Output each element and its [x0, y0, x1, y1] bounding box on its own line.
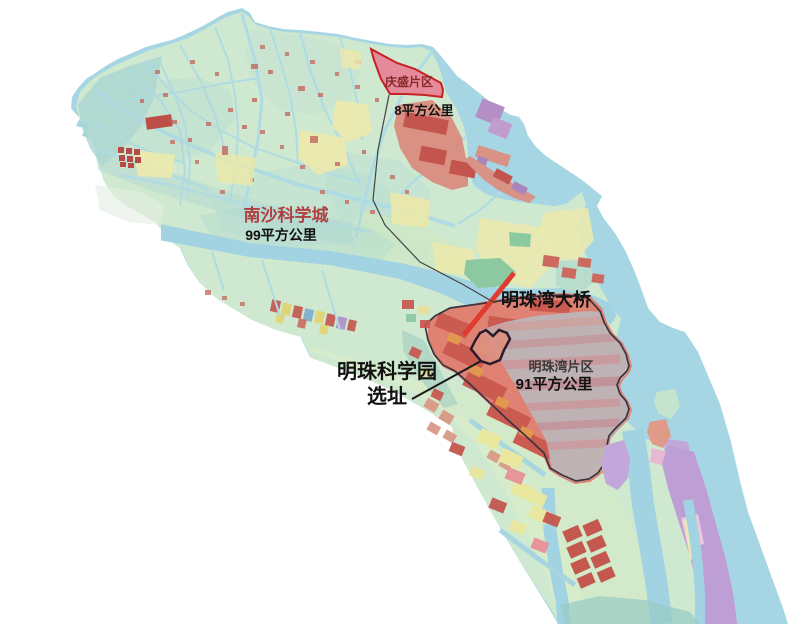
svg-text:明珠湾大桥: 明珠湾大桥: [501, 289, 592, 310]
svg-text:庆盛片区: 庆盛片区: [384, 74, 433, 89]
svg-text:明珠科学园: 明珠科学园: [337, 359, 437, 383]
svg-text:91平方公里: 91平方公里: [516, 375, 593, 393]
svg-text:南沙科学城: 南沙科学城: [244, 205, 329, 225]
svg-text:8平方公里: 8平方公里: [394, 103, 453, 118]
svg-text:选址: 选址: [367, 385, 407, 408]
svg-text:99平方公里: 99平方公里: [245, 227, 317, 243]
svg-text:明珠湾片区: 明珠湾片区: [528, 359, 593, 374]
